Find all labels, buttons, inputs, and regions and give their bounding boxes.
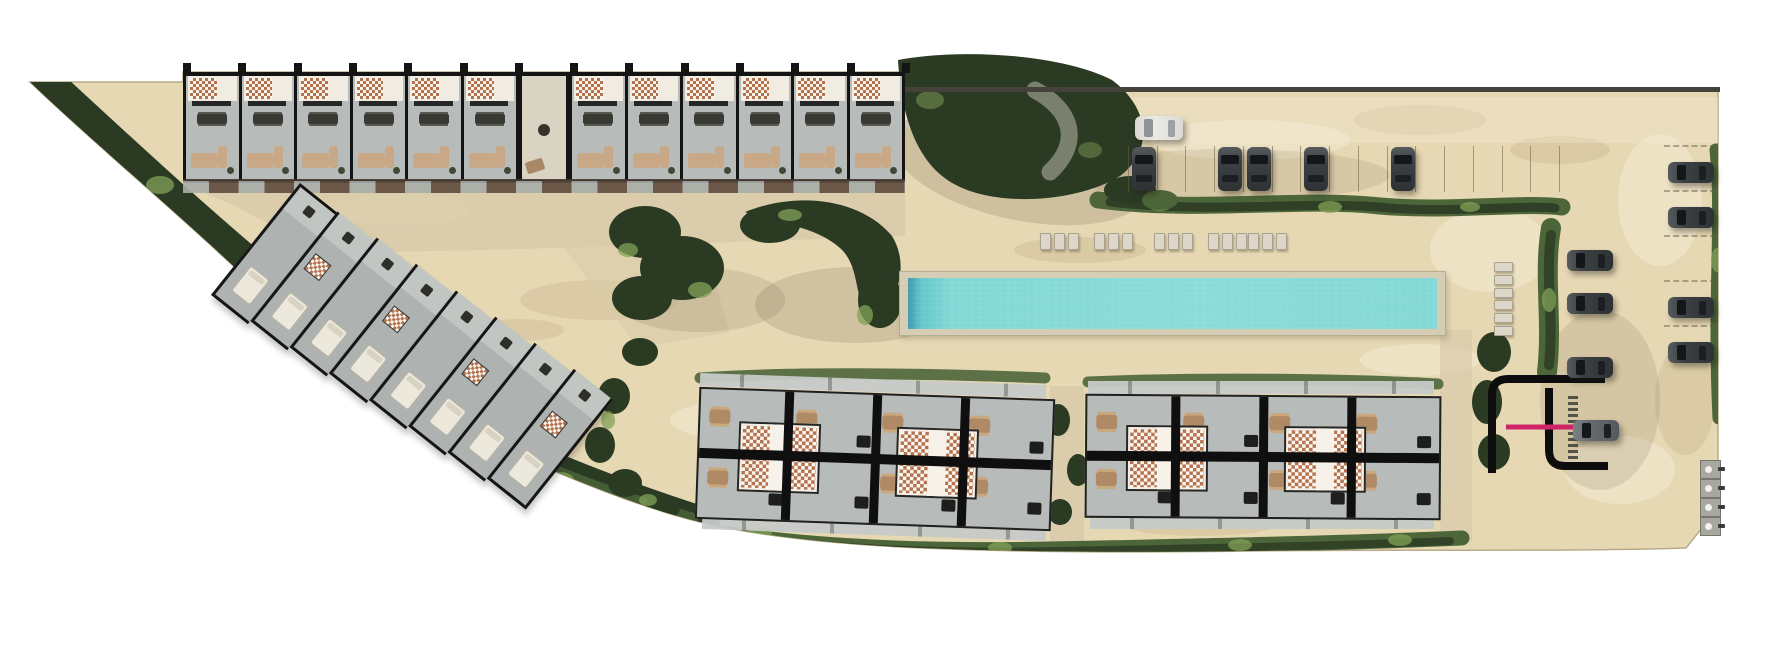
sofa	[358, 153, 385, 168]
sofa	[413, 153, 440, 168]
sun-lounger	[1168, 233, 1179, 250]
dining-table	[639, 114, 669, 124]
parking-stall	[1273, 146, 1302, 192]
parked-car	[1668, 342, 1714, 363]
bed	[467, 423, 506, 463]
parked-car	[1668, 162, 1714, 183]
parking-stall	[1503, 146, 1532, 192]
sun-lounger	[1108, 233, 1119, 250]
dining-table	[475, 114, 505, 124]
dining-table	[419, 114, 449, 124]
sofa	[744, 153, 771, 168]
plant	[613, 167, 620, 174]
sun-lounger	[1154, 233, 1165, 250]
kitchen-tiles	[410, 76, 459, 101]
lounger-group	[1154, 233, 1193, 250]
sofa	[247, 153, 274, 168]
sun-lounger	[1494, 262, 1513, 272]
plant	[890, 167, 897, 174]
patio-tiles	[540, 410, 568, 438]
kitchen-counter	[800, 101, 839, 106]
townhouse-unit	[569, 76, 625, 180]
parked-car	[1567, 293, 1613, 314]
kitchen-counter	[470, 101, 509, 106]
sofa	[191, 153, 218, 168]
plant	[449, 167, 456, 174]
white-car	[1135, 116, 1183, 140]
sun-lounger	[1262, 233, 1273, 250]
townhouse-unit	[405, 76, 461, 180]
plant	[504, 167, 511, 174]
villa-cluster-d	[1085, 394, 1442, 520]
parking-stall	[1330, 146, 1359, 192]
patio-tiles	[461, 358, 489, 386]
parking-stall-line	[1664, 145, 1716, 148]
townhouse-unit	[461, 76, 520, 180]
kitchen-counter	[689, 101, 728, 106]
dining-table	[308, 114, 338, 124]
bed	[231, 265, 270, 305]
sun-lounger	[1248, 233, 1259, 250]
parking-stall-line	[1664, 235, 1716, 238]
row-a-east-units	[569, 76, 905, 180]
patio-tiles	[303, 253, 331, 281]
kitchen-tiles	[852, 76, 901, 101]
townhouse-unit	[294, 76, 350, 180]
sun-lounger	[1276, 233, 1287, 250]
kitchen-counter	[634, 101, 673, 106]
kitchen-tiles	[741, 76, 790, 101]
sofa	[799, 153, 826, 168]
lounger-group	[1494, 262, 1513, 298]
sun-lounger	[1494, 288, 1513, 298]
kitchen-tiles	[188, 76, 237, 101]
dining-table	[583, 114, 613, 124]
plant	[227, 167, 234, 174]
north-parking-stalls	[1100, 146, 1560, 192]
entrance-lobby	[519, 76, 569, 180]
sun-lounger	[1208, 233, 1219, 250]
parked-car	[1668, 207, 1714, 228]
kitchen-counter	[303, 101, 342, 106]
townhouse-unit	[736, 76, 792, 180]
dining-table	[694, 114, 724, 124]
site-plan-canvas	[0, 0, 1786, 656]
kitchen-tiles	[244, 76, 293, 101]
parked-car	[1304, 147, 1328, 191]
parking-stall-line	[1664, 280, 1716, 283]
bed	[310, 318, 349, 358]
townhouse-unit	[239, 76, 295, 180]
lounger-group	[1494, 300, 1513, 336]
sun-lounger	[1182, 233, 1193, 250]
kitchen-tiles	[355, 76, 404, 101]
parking-stall-line	[1664, 325, 1716, 328]
parked-car	[1247, 147, 1271, 191]
utility-pad	[1700, 517, 1721, 536]
bed	[389, 370, 428, 410]
kitchen-counter	[248, 101, 287, 106]
sun-lounger	[1494, 326, 1513, 336]
sun-lounger	[1068, 233, 1079, 250]
bed	[271, 292, 310, 332]
kitchen-tiles	[299, 76, 348, 101]
parked-car	[1567, 250, 1613, 271]
sofa	[302, 153, 329, 168]
villa-cluster-c	[695, 387, 1055, 531]
plant	[835, 167, 842, 174]
townhouse-unit	[680, 76, 736, 180]
parking-stall	[1416, 146, 1445, 192]
townhouse-unit	[791, 76, 847, 180]
plant	[393, 167, 400, 174]
sun-lounger	[1494, 300, 1513, 310]
plant	[724, 167, 731, 174]
sofa	[577, 153, 604, 168]
bed	[507, 449, 546, 489]
parking-stall	[1445, 146, 1474, 192]
parking-stall	[1158, 146, 1187, 192]
plant	[282, 167, 289, 174]
townhouse-unit	[183, 76, 239, 180]
parking-stall	[1474, 146, 1503, 192]
parking-stall	[1359, 146, 1388, 192]
parking-stall-line	[1664, 190, 1716, 193]
plant	[668, 167, 675, 174]
townhouse-row-a	[183, 72, 905, 183]
dining-table	[750, 114, 780, 124]
kitchen-counter	[745, 101, 784, 106]
townhouse-unit	[847, 76, 906, 180]
parked-car	[1391, 147, 1415, 191]
kitchen-tiles	[685, 76, 734, 101]
lounger-group	[1248, 233, 1287, 250]
utility-pad	[1700, 498, 1721, 517]
sun-lounger	[1040, 233, 1051, 250]
parked-car	[1668, 297, 1714, 318]
plant	[779, 167, 786, 174]
dining-table	[805, 114, 835, 124]
kitchen-tiles	[796, 76, 845, 101]
kitchen-counter	[578, 101, 617, 106]
pool-water	[908, 278, 1437, 329]
row-a-west-units	[183, 76, 519, 180]
kitchen-counter	[414, 101, 453, 106]
dining-table	[861, 114, 891, 124]
entrance-car	[1573, 420, 1619, 441]
dining-table	[364, 114, 394, 124]
lap-pool	[899, 271, 1446, 336]
parked-car	[1218, 147, 1242, 191]
lounger-group	[1094, 233, 1133, 250]
kitchen-tiles	[574, 76, 623, 101]
kitchen-counter	[856, 101, 895, 106]
row-a-terrace-band	[183, 179, 905, 193]
north-boundary-wall	[900, 87, 1720, 92]
sofa	[469, 153, 496, 168]
utility-pad	[1700, 460, 1721, 479]
plant	[338, 167, 345, 174]
parking-stall	[1186, 146, 1215, 192]
sun-lounger	[1494, 275, 1513, 285]
parked-car	[1567, 357, 1613, 378]
utility-pad	[1700, 479, 1721, 498]
kitchen-tiles	[466, 76, 515, 101]
parked-car	[1132, 147, 1156, 191]
sun-lounger	[1236, 233, 1247, 250]
sofa	[688, 153, 715, 168]
bed	[428, 397, 467, 437]
parking-stall	[1100, 146, 1129, 192]
sun-lounger	[1094, 233, 1105, 250]
sofa	[633, 153, 660, 168]
sun-lounger	[1054, 233, 1065, 250]
sun-lounger	[1222, 233, 1233, 250]
patio-tiles	[382, 306, 410, 334]
sun-lounger	[1122, 233, 1133, 250]
sun-lounger	[1494, 313, 1513, 323]
lounger-group	[1208, 233, 1247, 250]
kitchen-tiles	[630, 76, 679, 101]
townhouse-unit	[625, 76, 681, 180]
kitchen-counter	[192, 101, 231, 106]
dining-table	[253, 114, 283, 124]
lounger-group	[1040, 233, 1079, 250]
townhouse-unit	[350, 76, 406, 180]
kitchen-counter	[359, 101, 398, 106]
bed	[349, 344, 388, 384]
sofa	[855, 153, 882, 168]
dining-table	[197, 114, 227, 124]
cluster-d-north-patios	[1088, 381, 1434, 394]
parking-stall	[1531, 146, 1560, 192]
